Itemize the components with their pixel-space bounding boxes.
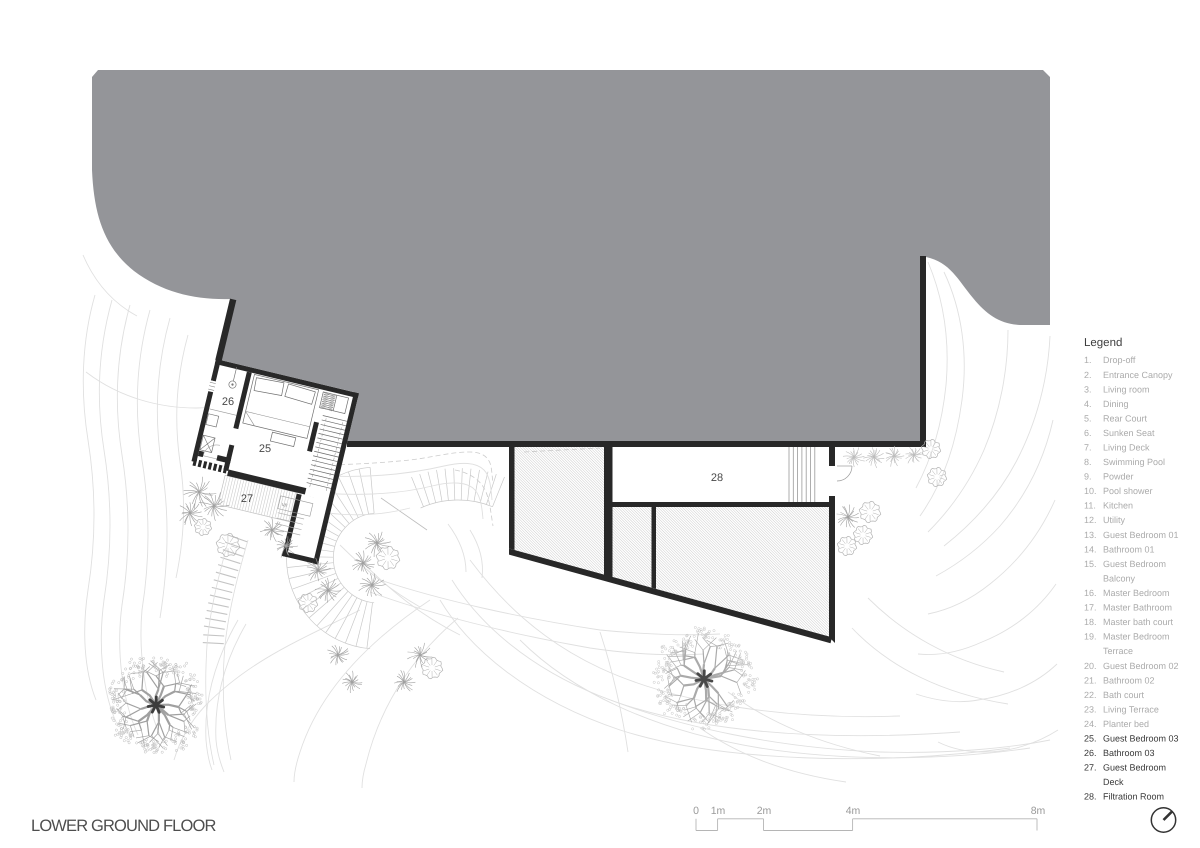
svg-text:25.: 25. [1084, 734, 1097, 744]
svg-text:10.: 10. [1084, 486, 1097, 496]
svg-text:Pool shower: Pool shower [1103, 486, 1153, 496]
svg-text:15.: 15. [1084, 559, 1097, 569]
svg-text:Entrance Canopy: Entrance Canopy [1103, 370, 1173, 380]
svg-text:Dining: Dining [1103, 399, 1129, 409]
svg-text:Rear Court: Rear Court [1103, 413, 1148, 423]
svg-text:13.: 13. [1084, 530, 1097, 540]
svg-text:21.: 21. [1084, 675, 1097, 685]
svg-text:Bathroom 03: Bathroom 03 [1103, 748, 1155, 758]
svg-text:20.: 20. [1084, 661, 1097, 671]
svg-text:Swimming Pool: Swimming Pool [1103, 457, 1165, 467]
svg-text:8.: 8. [1084, 457, 1092, 467]
svg-text:16.: 16. [1084, 588, 1097, 598]
svg-text:9.: 9. [1084, 472, 1092, 482]
svg-text:Bathroom 02: Bathroom 02 [1103, 675, 1155, 685]
svg-text:Terrace: Terrace [1103, 646, 1133, 656]
svg-text:Master Bedroom: Master Bedroom [1103, 588, 1170, 598]
svg-text:Guest Bedroom: Guest Bedroom [1103, 559, 1166, 569]
svg-text:Bath court: Bath court [1103, 690, 1145, 700]
svg-text:11.: 11. [1084, 501, 1096, 511]
svg-text:26.: 26. [1084, 748, 1097, 758]
svg-text:Living Deck: Living Deck [1103, 443, 1150, 453]
svg-text:27: 27 [241, 493, 253, 505]
svg-text:Balcony: Balcony [1103, 574, 1136, 584]
svg-text:1m: 1m [711, 805, 726, 817]
svg-text:27.: 27. [1084, 763, 1097, 773]
svg-text:23.: 23. [1084, 704, 1097, 714]
svg-text:Master bath court: Master bath court [1103, 617, 1174, 627]
svg-text:18.: 18. [1084, 617, 1097, 627]
svg-text:Guest Bedroom 03: Guest Bedroom 03 [1103, 734, 1179, 744]
svg-text:0: 0 [693, 805, 699, 817]
svg-text:Drop-off: Drop-off [1103, 355, 1136, 365]
svg-text:Guest Bedroom: Guest Bedroom [1103, 763, 1166, 773]
svg-text:Bathroom 01: Bathroom 01 [1103, 544, 1155, 554]
svg-text:26: 26 [222, 396, 234, 408]
svg-text:28: 28 [711, 472, 723, 484]
svg-text:3.: 3. [1084, 384, 1092, 394]
svg-text:Living Terrace: Living Terrace [1103, 704, 1159, 714]
svg-text:Guest Bedroom 02: Guest Bedroom 02 [1103, 661, 1179, 671]
svg-text:17.: 17. [1084, 603, 1097, 613]
svg-text:Powder: Powder [1103, 472, 1134, 482]
svg-text:4m: 4m [846, 805, 861, 817]
svg-text:12.: 12. [1084, 515, 1097, 525]
svg-text:Kitchen: Kitchen [1103, 501, 1133, 511]
svg-text:7.: 7. [1084, 443, 1092, 453]
svg-text:Utility: Utility [1103, 515, 1125, 525]
svg-text:4.: 4. [1084, 399, 1092, 409]
svg-text:Planter bed: Planter bed [1103, 719, 1149, 729]
svg-text:Master Bedroom: Master Bedroom [1103, 632, 1170, 642]
svg-text:Master Bathroom: Master Bathroom [1103, 603, 1172, 613]
svg-text:6.: 6. [1084, 428, 1092, 438]
svg-text:22.: 22. [1084, 690, 1097, 700]
svg-text:LOWER GROUND FLOOR: LOWER GROUND FLOOR [31, 817, 216, 835]
svg-text:14.: 14. [1084, 544, 1097, 554]
svg-text:8m: 8m [1031, 805, 1046, 817]
svg-text:19.: 19. [1084, 632, 1097, 642]
svg-text:25: 25 [259, 443, 271, 455]
svg-text:Sunken Seat: Sunken Seat [1103, 428, 1155, 438]
svg-text:Living room: Living room [1103, 384, 1150, 394]
svg-text:24.: 24. [1084, 719, 1097, 729]
svg-text:5.: 5. [1084, 413, 1092, 423]
svg-text:Legend: Legend [1084, 337, 1122, 349]
svg-text:Filtration Room: Filtration Room [1103, 792, 1164, 802]
svg-text:28.: 28. [1084, 792, 1097, 802]
svg-text:Deck: Deck [1103, 777, 1124, 787]
svg-text:Guest Bedroom 01: Guest Bedroom 01 [1103, 530, 1179, 540]
svg-text:2.: 2. [1084, 370, 1092, 380]
svg-text:1.: 1. [1084, 355, 1092, 365]
svg-text:2m: 2m [757, 805, 772, 817]
